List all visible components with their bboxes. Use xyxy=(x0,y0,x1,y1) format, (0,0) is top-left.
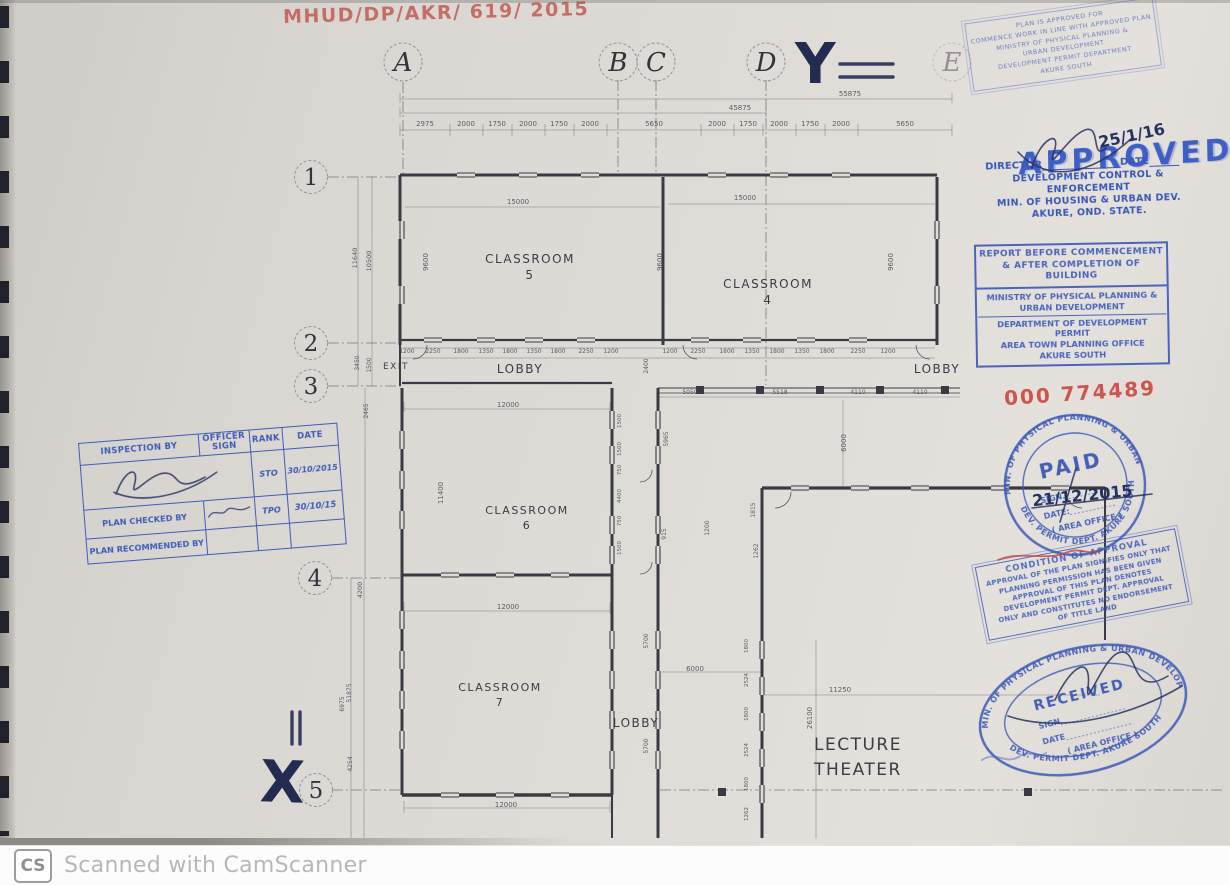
director-signature-line xyxy=(1042,158,1120,171)
dimension-label: 11400 xyxy=(437,482,445,504)
grid-column-label: E xyxy=(942,48,962,78)
door-swing-arc xyxy=(916,345,930,359)
dimension-label: 2975 xyxy=(416,120,434,128)
dimension-label: 2250 xyxy=(578,348,593,355)
dimension-label: 2524 xyxy=(744,743,750,757)
column-post xyxy=(718,788,726,796)
dimension-label: 2524 xyxy=(744,673,750,687)
dimension-label: 5700 xyxy=(643,633,650,648)
checker-rank-handwriting: TPO xyxy=(254,494,289,526)
inspection-stamp: INSPECTION BY OFFICER SIGN RANK DATE STO… xyxy=(78,424,323,564)
empty-cell xyxy=(205,525,258,554)
camscanner-logo: CS xyxy=(14,849,52,883)
dimension-label: 1800 xyxy=(502,348,517,355)
dimension-label: 1262 xyxy=(753,543,760,558)
dimension-label: 4200 xyxy=(356,582,364,599)
scanned-floor-plan-page: ABCDE12345 CLASSROOM5CLASSROOM4CLASSROOM… xyxy=(0,0,1230,885)
dimension-label: 12000 xyxy=(495,801,517,809)
dimension-label: 11250 xyxy=(829,686,851,694)
checker-signature-cell xyxy=(203,497,256,530)
y-pen-mark: Y xyxy=(795,32,836,97)
paid-stamp-title: PAID xyxy=(1037,447,1105,484)
report-stamp-bottom: MINISTRY OF PHYSICAL PLANNING &URBAN DEV… xyxy=(977,286,1168,365)
dimension-label: 2000 xyxy=(581,120,599,128)
dimension-label: 1800 xyxy=(744,777,750,791)
dimension-label: 915 xyxy=(661,528,668,540)
column-post xyxy=(941,386,949,394)
grid-column-label: C xyxy=(646,48,666,78)
empty-cell xyxy=(289,519,346,548)
dimension-label: 1200 xyxy=(704,520,711,535)
dimension-label: 10500 xyxy=(365,251,373,272)
camscanner-watermark-bar: CS Scanned with CamScanner xyxy=(0,845,1230,885)
dimension-label: 1500 xyxy=(617,541,623,555)
dimension-label: 1350 xyxy=(478,348,493,355)
grid-row-label: 1 xyxy=(304,165,319,191)
date-label: DATE xyxy=(1120,156,1149,168)
room-label: CLASSROOM xyxy=(723,277,813,291)
dimension-label: 1200 xyxy=(662,348,677,355)
dimension-label: 1800 xyxy=(550,348,565,355)
dimension-label: 5518 xyxy=(772,389,787,396)
date-line xyxy=(1149,156,1179,167)
dimension-label: 5965 xyxy=(663,431,670,446)
dimension-label: 750 xyxy=(617,515,623,526)
dimension-label: 2000 xyxy=(832,120,850,128)
paid-date-label: DATE: xyxy=(1043,507,1071,521)
dimension-label: 5700 xyxy=(643,738,650,753)
dimension-label: 2250 xyxy=(690,348,705,355)
room-label: 6 xyxy=(523,519,532,532)
dimension-label: 1815 xyxy=(750,502,757,517)
dimension-label: 6000 xyxy=(840,434,848,452)
door-swing-arc xyxy=(640,562,652,574)
dimension-label: 1200 xyxy=(399,348,414,355)
room-label: THEATER xyxy=(813,760,902,780)
report-stamp: REPORT BEFORE COMMENCEMENT& AFTER COMPLE… xyxy=(974,241,1170,367)
received-date-label: DATE xyxy=(1042,732,1067,746)
dimension-label: 1500 xyxy=(617,442,623,456)
dimension-label: 15000 xyxy=(507,198,529,206)
dimension-label: 4110 xyxy=(850,389,865,396)
report-stamp-top: REPORT BEFORE COMMENCEMENT& AFTER COMPLE… xyxy=(976,243,1167,289)
dimension-label: 2000 xyxy=(708,120,726,128)
dimension-label: 55875 xyxy=(839,90,861,98)
room-label: LOBBY xyxy=(914,362,960,376)
inspection-date-handwriting: 30/10/2015 xyxy=(283,445,342,494)
dimension-label: 1750 xyxy=(801,120,819,128)
inspector-rank-handwriting: STO xyxy=(250,449,286,496)
dimension-label: 750 xyxy=(617,464,623,475)
grid-column-label: B xyxy=(607,48,627,78)
dimension-label: 9600 xyxy=(422,253,430,271)
dimension-label: 11640 xyxy=(351,248,359,269)
dimension-label: 1200 xyxy=(603,348,618,355)
dimension-label: 4254 xyxy=(347,756,354,771)
door-swing-arc xyxy=(640,470,652,482)
room-label: EXIT xyxy=(383,362,409,372)
checker-signature xyxy=(206,500,253,524)
received-stamp-title: RECEIVED xyxy=(1032,676,1127,714)
dimension-label: 12000 xyxy=(497,603,519,611)
dimension-label: 1500 xyxy=(366,357,373,372)
room-label: 7 xyxy=(496,696,505,709)
dimension-label: 4110 xyxy=(912,389,927,396)
dimension-label: 5650 xyxy=(645,120,663,128)
column-post xyxy=(756,386,764,394)
grid-row-label: 5 xyxy=(309,778,324,804)
dimension-label: 1500 xyxy=(617,414,623,428)
dimension-label: 2000 xyxy=(457,120,475,128)
dimension-label: 2465 xyxy=(363,403,370,418)
dimension-label: 12000 xyxy=(497,401,519,409)
room-label: 5 xyxy=(525,268,534,282)
dimension-label: 4400 xyxy=(617,489,623,503)
empty-cell xyxy=(256,523,291,551)
dimension-label: 1800 xyxy=(769,348,784,355)
dimension-label: 26100 xyxy=(806,707,814,729)
room-label: LOBBY xyxy=(497,362,543,376)
dimension-label: 2250 xyxy=(850,348,865,355)
dimension-label: 5050 xyxy=(682,389,697,396)
grid-row-label: 3 xyxy=(304,374,319,400)
dimension-label: 2250 xyxy=(425,348,440,355)
dimension-label: 3450 xyxy=(354,355,361,370)
room-label: CLASSROOM xyxy=(485,504,569,517)
dimension-label: 1350 xyxy=(526,348,541,355)
spiral-binding xyxy=(0,0,16,845)
director-stamp: DIRECTOR DATE DEVELOPMENT CONTROL & ENFO… xyxy=(985,154,1192,222)
dimension-label: 1262 xyxy=(744,807,750,821)
dimension-label: 9600 xyxy=(656,253,664,271)
checked-date-handwriting: 30/10/15 xyxy=(287,490,344,523)
room-label: LOBBY xyxy=(613,716,659,730)
room-label: CLASSROOM xyxy=(485,252,575,266)
column-post xyxy=(876,386,884,394)
dimension-label: 6000 xyxy=(686,665,704,673)
dimension-label: 1800 xyxy=(453,348,468,355)
dimension-label: 51875 xyxy=(346,683,353,702)
dimension-label: 1350 xyxy=(794,348,809,355)
dimension-label: 1750 xyxy=(488,120,506,128)
dimension-label: 1800 xyxy=(819,348,834,355)
camscanner-watermark-text: Scanned with CamScanner xyxy=(64,853,367,878)
room-label: CLASSROOM xyxy=(458,681,542,694)
report-stamp-line: & AFTER COMPLETION OF BUILDING xyxy=(977,258,1165,285)
grid-column-label: A xyxy=(392,48,413,78)
x-pen-mark: X xyxy=(259,747,306,817)
director-label: DIRECTOR xyxy=(985,160,1042,173)
received-sign-line xyxy=(1061,708,1127,724)
dimension-label: 15000 xyxy=(734,194,756,202)
dimension-label: 5650 xyxy=(896,120,914,128)
room-label: LECTURE xyxy=(814,735,902,755)
dimension-label: 45875 xyxy=(729,104,751,112)
inspection-table: INSPECTION BY OFFICER SIGN RANK DATE STO… xyxy=(78,423,347,565)
room-label: 4 xyxy=(763,293,772,307)
dimension-label: 1800 xyxy=(719,348,734,355)
dimension-label: 2000 xyxy=(770,120,788,128)
page-edge-shadow xyxy=(0,838,677,845)
inspector-signature xyxy=(106,455,229,504)
dimension-label: 1750 xyxy=(739,120,757,128)
door-swing-arc xyxy=(775,492,791,508)
dimension-label: 1750 xyxy=(550,120,568,128)
grid-row-label: 2 xyxy=(304,331,319,357)
dimension-label: 9600 xyxy=(887,253,895,271)
dimension-label: 1200 xyxy=(880,348,895,355)
column-post xyxy=(816,386,824,394)
rank-header: RANK xyxy=(249,427,284,451)
dimension-label: 2000 xyxy=(519,120,537,128)
dimension-label: 1800 xyxy=(744,707,750,721)
director-stamp-lines: DEVELOPMENT CONTROL & ENFORCEMENTMIN. OF… xyxy=(985,167,1192,222)
received-sign-label: SIGN xyxy=(1038,717,1062,731)
grid-row-label: 4 xyxy=(308,566,323,592)
grid-column-label: D xyxy=(755,48,777,78)
dimension-label: 2400 xyxy=(643,358,650,373)
dimension-label: 6975 xyxy=(339,696,346,711)
dimension-label: 1350 xyxy=(744,348,759,355)
dimension-label: 1800 xyxy=(744,639,750,653)
